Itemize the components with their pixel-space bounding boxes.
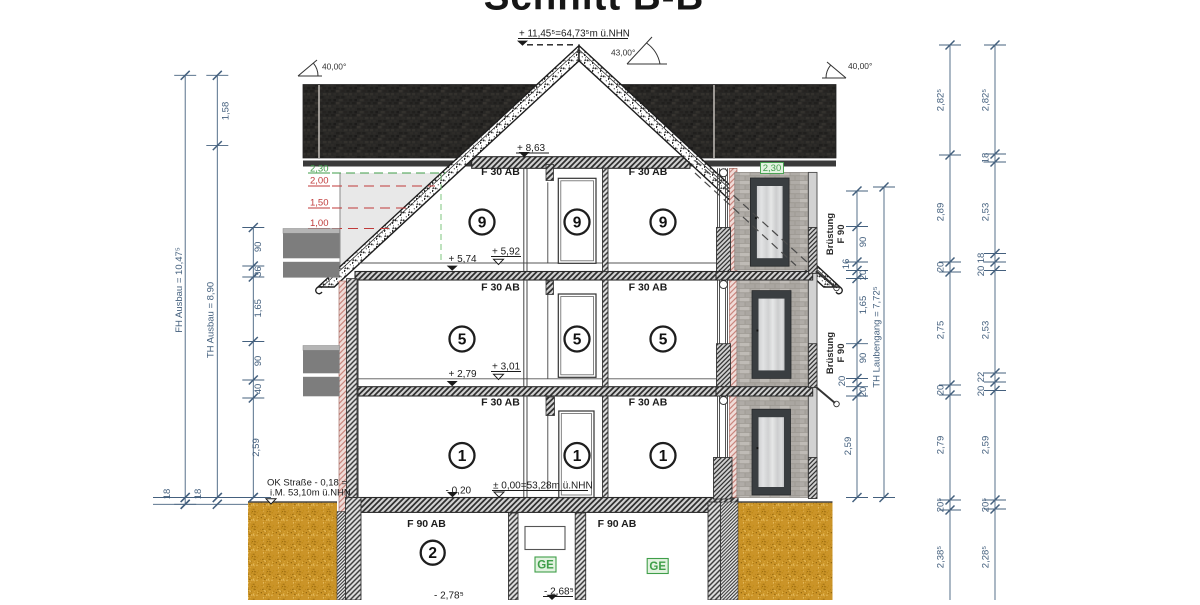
svg-text:20: 20	[976, 266, 987, 277]
svg-text:90: 90	[858, 353, 869, 364]
svg-text:Schnitt B-B: Schnitt B-B	[484, 0, 705, 19]
svg-text:5: 5	[458, 332, 467, 349]
svg-text:20: 20	[936, 262, 947, 273]
svg-text:Brüstung: Brüstung	[825, 332, 836, 374]
svg-text:2,89: 2,89	[936, 203, 947, 222]
svg-text:TH Laubengang = 7,72⁵: TH Laubengang = 7,72⁵	[872, 286, 883, 387]
svg-text:20: 20	[858, 387, 869, 398]
svg-text:22: 22	[976, 372, 987, 383]
svg-text:- 2,78⁵: - 2,78⁵	[434, 591, 464, 601]
svg-text:20: 20	[976, 386, 987, 397]
svg-text:F 30 AB: F 30 AB	[629, 166, 668, 178]
svg-text:20: 20	[837, 376, 848, 387]
svg-text:± 0,00=53,28m ü.NHN: ± 0,00=53,28m ü.NHN	[493, 481, 593, 492]
svg-text:18: 18	[981, 153, 992, 164]
svg-text:40,00°: 40,00°	[848, 61, 872, 71]
svg-text:9: 9	[478, 215, 487, 232]
svg-text:F 90: F 90	[836, 224, 847, 243]
svg-text:+ 5,92: + 5,92	[492, 247, 521, 258]
svg-text:i.M. 53,10m ü.NHN: i.M. 53,10m ü.NHN	[270, 488, 351, 499]
svg-text:F 30 AB: F 30 AB	[629, 282, 668, 294]
svg-text:2,82⁵: 2,82⁵	[981, 89, 992, 111]
svg-text:2,75: 2,75	[936, 321, 947, 340]
svg-text:+ 5,74: + 5,74	[449, 254, 478, 265]
svg-text:90: 90	[858, 237, 869, 248]
svg-text:5: 5	[659, 332, 668, 349]
svg-text:2,53: 2,53	[981, 321, 992, 340]
svg-text:1: 1	[573, 448, 582, 465]
svg-text:+ 3,01: + 3,01	[492, 362, 521, 373]
svg-text:40: 40	[253, 384, 264, 395]
svg-text:1,65: 1,65	[858, 296, 869, 315]
svg-text:FH Ausbau = 10,47⁵: FH Ausbau = 10,47⁵	[174, 247, 185, 333]
svg-text:F 30 AB: F 30 AB	[629, 397, 668, 409]
svg-text:GE: GE	[537, 560, 554, 572]
svg-text:- 0,20: - 0,20	[446, 486, 472, 497]
svg-text:2,53: 2,53	[981, 203, 992, 222]
svg-text:+ 11,45⁵=64,73⁵m ü.NHN: + 11,45⁵=64,73⁵m ü.NHN	[519, 29, 630, 40]
svg-text:1,00: 1,00	[310, 218, 329, 229]
svg-text:F 90 AB: F 90 AB	[407, 518, 446, 530]
svg-text:20⁵: 20⁵	[936, 498, 947, 513]
svg-text:1: 1	[458, 448, 467, 465]
svg-text:F 30 AB: F 30 AB	[481, 397, 520, 409]
svg-text:36: 36	[253, 266, 264, 277]
svg-text:1,50: 1,50	[310, 198, 329, 209]
svg-text:90: 90	[253, 356, 264, 367]
svg-text:+ 2,79: + 2,79	[449, 369, 478, 380]
svg-text:40,00°: 40,00°	[322, 62, 346, 72]
svg-text:1,58: 1,58	[221, 102, 232, 121]
svg-text:F 30 AB: F 30 AB	[481, 282, 520, 294]
svg-text:2,59: 2,59	[981, 436, 992, 455]
svg-text:16: 16	[841, 259, 852, 270]
svg-text:2: 2	[428, 545, 437, 562]
svg-text:43,00°: 43,00°	[611, 48, 635, 58]
svg-text:2,38⁵: 2,38⁵	[936, 546, 947, 568]
svg-text:2,28⁵: 2,28⁵	[981, 546, 992, 568]
svg-text:20: 20	[936, 385, 947, 396]
svg-text:5: 5	[573, 332, 582, 349]
svg-text:2,79: 2,79	[936, 436, 947, 455]
svg-text:F 90: F 90	[836, 343, 847, 362]
svg-text:2,82⁵: 2,82⁵	[936, 89, 947, 111]
svg-text:F 30 AB: F 30 AB	[481, 166, 520, 178]
svg-text:Brüstung: Brüstung	[825, 213, 836, 255]
svg-text:2,00: 2,00	[310, 176, 329, 187]
svg-text:1,65: 1,65	[253, 299, 264, 318]
svg-text:GE: GE	[649, 561, 666, 573]
svg-text:2,59: 2,59	[251, 438, 262, 457]
svg-text:20: 20	[858, 270, 869, 281]
svg-text:18: 18	[976, 253, 987, 264]
svg-text:1: 1	[659, 448, 668, 465]
svg-text:2,30: 2,30	[763, 163, 782, 174]
svg-text:9: 9	[659, 215, 668, 232]
svg-text:20⁵: 20⁵	[981, 498, 992, 513]
svg-text:90: 90	[253, 242, 264, 253]
svg-text:F 90 AB: F 90 AB	[598, 518, 637, 530]
svg-text:2,59: 2,59	[843, 437, 854, 456]
svg-text:9: 9	[573, 215, 582, 232]
svg-text:TH Ausbau = 8,90: TH Ausbau = 8,90	[206, 282, 217, 358]
